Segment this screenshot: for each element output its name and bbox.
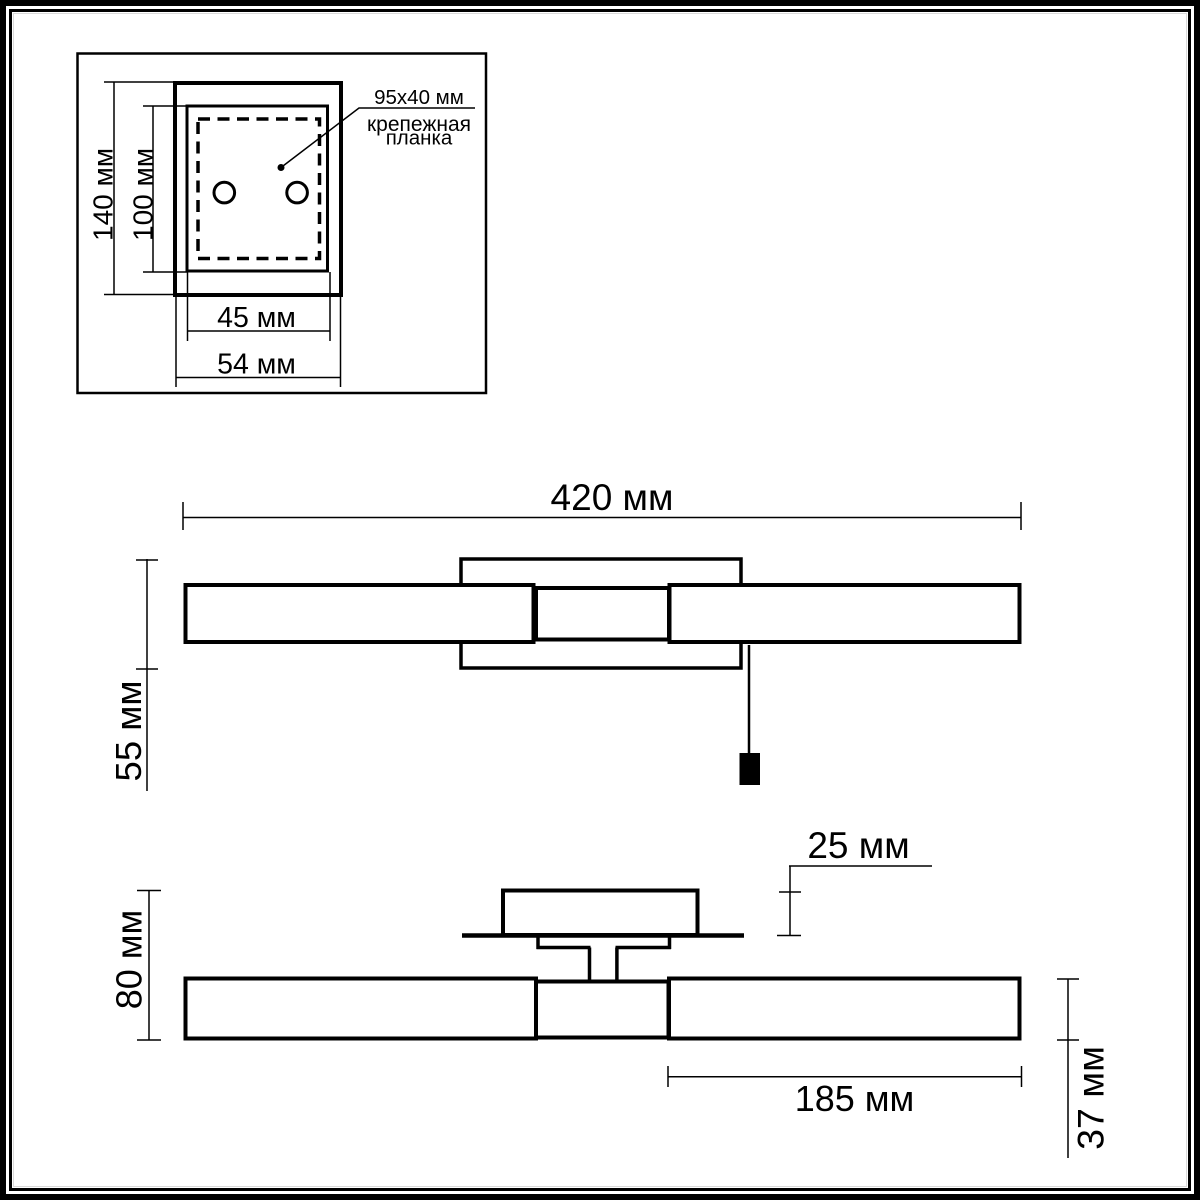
svg-text:планка: планка [386, 127, 453, 150]
svg-text:25 мм: 25 мм [807, 825, 909, 866]
svg-text:54 мм: 54 мм [217, 349, 296, 381]
svg-text:140 мм: 140 мм [88, 148, 119, 241]
svg-text:185 мм: 185 мм [795, 1078, 915, 1119]
svg-text:55 мм: 55 мм [108, 681, 149, 782]
svg-text:37 мм: 37 мм [1070, 1046, 1112, 1150]
svg-text:95x40 мм: 95x40 мм [374, 86, 464, 109]
svg-text:100 мм: 100 мм [128, 148, 159, 241]
svg-text:45 мм: 45 мм [217, 302, 296, 334]
svg-text:420 мм: 420 мм [551, 477, 674, 518]
svg-text:80 мм: 80 мм [109, 910, 150, 1010]
